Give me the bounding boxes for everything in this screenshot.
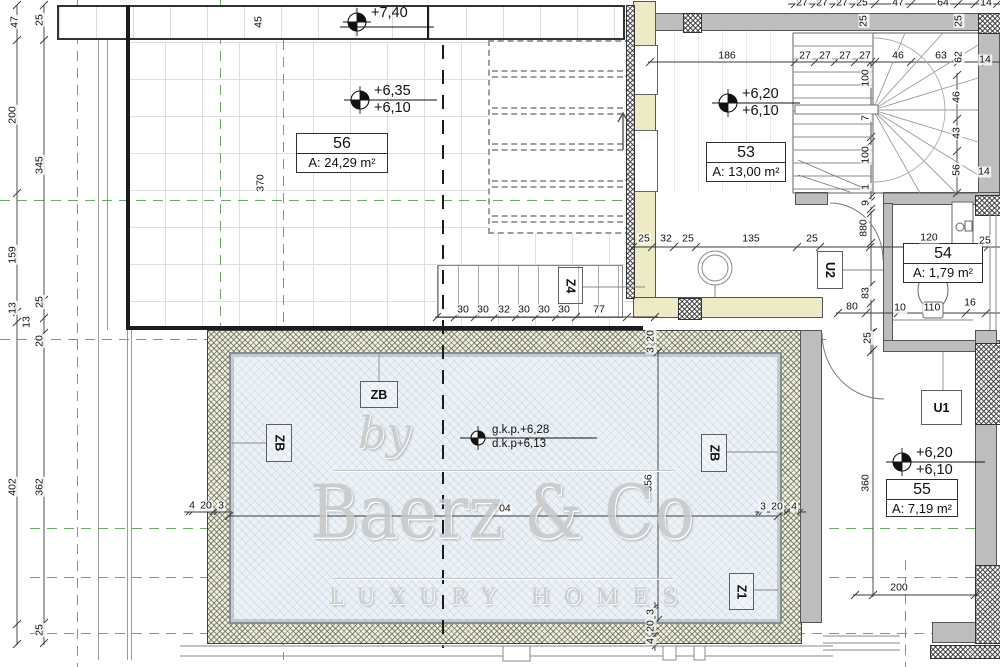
level-marker-text: +6,20+6,10 [742, 86, 779, 120]
dim-label: 10 [893, 303, 907, 314]
dim-label: 3 [217, 501, 225, 512]
dim-label: 25 [978, 236, 992, 247]
dim-label: 100 [861, 68, 872, 88]
dim-label: 56 [952, 163, 963, 177]
room-number: 56 [297, 134, 387, 154]
level-marker-text: g.k.p.+6,28d.k.p+6,13 [492, 424, 549, 452]
dim-label: 16 [963, 298, 977, 309]
dim-label: 80 [845, 302, 859, 313]
dim-label: 9 [861, 199, 872, 207]
watermark-rule-top [333, 470, 673, 471]
dim-label: 30 [557, 305, 571, 316]
elevation-value: +6,10 [742, 103, 779, 120]
dim-label: 83 [861, 286, 872, 300]
zone-label-text: ZB [272, 435, 286, 452]
zone-label-zb: ZB [266, 424, 292, 462]
dim-label: 27 [795, 0, 809, 9]
room-number: 54 [904, 244, 982, 264]
dim-label: 25 [954, 14, 965, 28]
dim-label: 25 [863, 331, 874, 345]
dim-label: 402 [8, 477, 19, 497]
room-area: A: 7,19 m² [887, 500, 957, 517]
dim-label: 25 [637, 234, 651, 245]
elevation-value: +6,20 [742, 86, 779, 103]
zone-label-zb: ZB [701, 434, 727, 472]
level-marker-text: +6,20+6,10 [916, 445, 953, 479]
dim-label: 7 [861, 114, 872, 122]
room-area: A: 13,00 m² [707, 163, 785, 180]
zone-label-u1: U1 [921, 390, 962, 425]
dim-label: 362 [35, 477, 46, 497]
dim-label: 30 [537, 305, 551, 316]
dim-label: 25 [855, 0, 869, 9]
dim-label: 14 [978, 55, 992, 66]
dim-label: 20 [35, 334, 46, 348]
room-number: 55 [887, 480, 957, 500]
elevation-value: +6,10 [374, 100, 411, 117]
level-marker-text: +6,35+6,10 [374, 83, 411, 117]
dim-label: 47 [891, 0, 905, 9]
dim-label: 4 [188, 501, 196, 512]
dim-label: 64 [936, 0, 950, 9]
dim-label: 4 [790, 502, 798, 513]
dim-label: 47 [10, 15, 21, 29]
dim-label: 30 [476, 305, 490, 316]
dim-label: 27 [858, 51, 872, 62]
dim-label: 704 [492, 504, 512, 515]
dim-label: 200 [889, 583, 909, 594]
dim-label: 25 [35, 623, 46, 637]
elevation-value: +7,40 [371, 5, 408, 22]
dim-label: 159 [8, 245, 19, 265]
dim-label: 46 [952, 90, 963, 104]
dim-label: 200 [8, 105, 19, 125]
dim-label: 110 [923, 303, 942, 314]
elevation-value: +6,35 [374, 83, 411, 100]
dim-label: 30 [517, 305, 531, 316]
dim-label: 46 [891, 51, 905, 62]
dim-label: 880 [859, 218, 870, 238]
zone-label-text: ZB [707, 445, 721, 462]
zone-label-text: ZB [371, 388, 388, 402]
zone-label-z4: Z4 [558, 267, 583, 304]
room-label-56: 56 A: 24,29 m² [296, 133, 388, 173]
dim-label: 25 [805, 234, 819, 245]
dim-label: 356 [644, 473, 655, 493]
dim-label: 25 [859, 14, 870, 28]
dim-label: 32 [659, 234, 673, 245]
dim-label: 14 [979, 0, 993, 9]
dim-label: 27 [838, 51, 852, 62]
level-marker-text: +7,40 [371, 5, 408, 22]
dim-label: 62 [954, 50, 965, 64]
dim-label: 27 [815, 0, 829, 9]
room-label-53: 53 A: 13,00 m² [706, 142, 786, 182]
dim-label: 25 [681, 234, 695, 245]
elevation-value: +6,20 [916, 445, 953, 462]
dim-label: 32 [497, 305, 511, 316]
dim-label: 345 [35, 155, 46, 175]
dim-label: 13 [8, 301, 19, 315]
dim-label: 370 [256, 173, 267, 193]
room-label-55: 55 A: 7,19 m² [886, 479, 958, 517]
dim-label: 20 [770, 502, 784, 513]
zone-label-text: Z4 [564, 278, 578, 293]
linework [0, 0, 1000, 667]
watermark-rule-bottom [333, 578, 673, 579]
dim-label: 45 [254, 15, 265, 29]
zone-label-u2: U2 [817, 251, 843, 289]
dim-label: 13 [22, 315, 33, 329]
dim-label: 25 [35, 13, 46, 27]
elevation-value: +6,10 [916, 462, 953, 479]
room-label-54: 54 A: 1,79 m² [903, 243, 983, 283]
elevation-value: d.k.p+6,13 [492, 438, 549, 452]
room-number: 53 [707, 143, 785, 163]
dim-label: 20 [646, 619, 657, 633]
dim-label: 43 [952, 126, 963, 140]
dim-label: 100 [861, 145, 872, 165]
dim-label: 30 [456, 305, 470, 316]
zone-label-text: Z1 [735, 584, 749, 599]
floor-plan-canvas: 56 A: 24,29 m² 53 A: 13,00 m² 54 A: 1,79… [0, 0, 1000, 667]
room-area: A: 24,29 m² [297, 154, 387, 171]
dim-label: 25 [35, 295, 46, 309]
dim-label: 20 [646, 329, 657, 343]
dim-label: 63 [934, 51, 948, 62]
dim-label: 27 [798, 51, 812, 62]
zone-label-text: U2 [823, 262, 837, 278]
zone-label-z1: Z1 [729, 573, 754, 610]
dim-label: 186 [717, 51, 737, 62]
dim-label: 14 [977, 167, 991, 178]
dim-label: 135 [741, 234, 761, 245]
room-area: A: 1,79 m² [904, 264, 982, 281]
dim-label: 4 [646, 637, 657, 645]
dim-label: 27 [835, 0, 849, 9]
dim-label: 1 [861, 183, 872, 191]
dim-label: 77 [592, 305, 606, 316]
dim-label: 3 [646, 608, 657, 616]
zone-label-text: U1 [934, 401, 950, 415]
dim-label: 20 [199, 501, 213, 512]
dim-label: 3 [646, 346, 657, 354]
dim-label: 3 [759, 502, 767, 513]
zone-label-zb: ZB [360, 381, 398, 408]
elevation-value: g.k.p.+6,28 [492, 424, 549, 438]
dim-label: 27 [818, 51, 832, 62]
dim-label: 120 [919, 233, 939, 244]
dim-label: 360 [861, 473, 872, 493]
